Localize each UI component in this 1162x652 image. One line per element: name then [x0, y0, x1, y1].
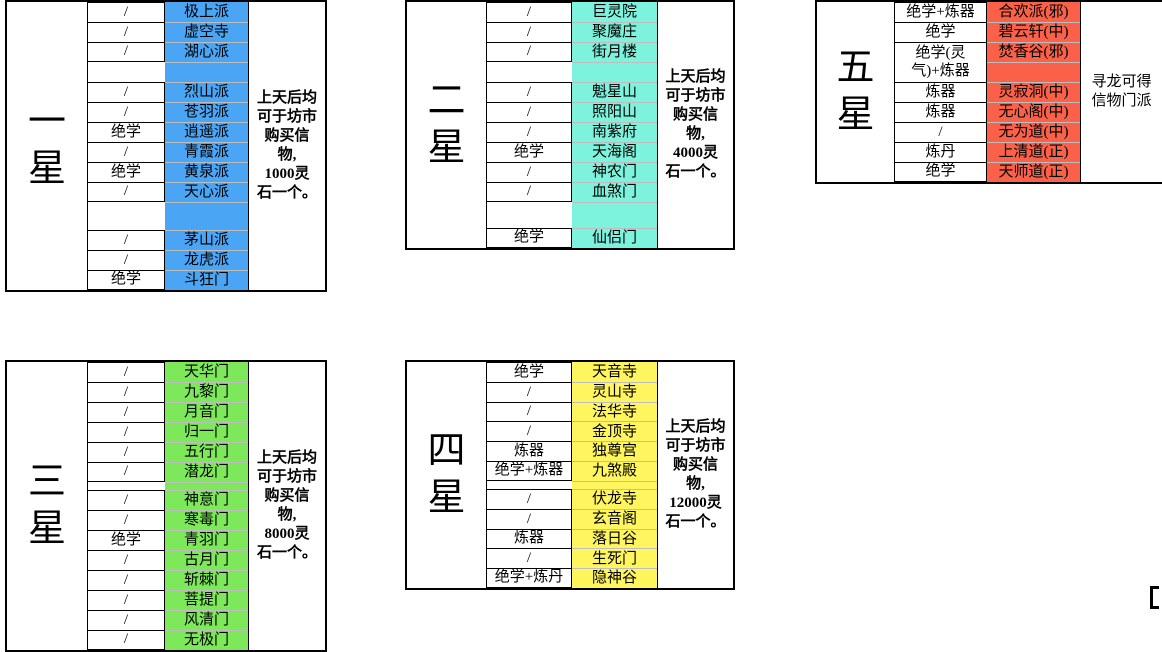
- requirement-cell[interactable]: /: [487, 42, 572, 62]
- sect-cell[interactable]: 南紫府: [572, 122, 657, 142]
- requirement-cell[interactable]: /: [487, 182, 572, 202]
- star-rating-char: 五: [836, 49, 874, 89]
- star-rating-char: 二: [427, 82, 465, 122]
- star-rating-char: 星: [28, 150, 66, 190]
- note-line: 购买信: [264, 127, 309, 146]
- sect-cell[interactable]: 神农门: [572, 162, 657, 182]
- sect-cell[interactable]: 伏龙寺: [572, 489, 657, 509]
- sect-cell[interactable]: 灵寂洞(中): [987, 82, 1080, 102]
- requirement-column: ////////绝学/////: [88, 362, 165, 650]
- note-line: 可于坊市: [665, 437, 725, 456]
- sect-cell[interactable]: 玄音阁: [572, 509, 657, 529]
- note-line: 物,: [278, 146, 297, 165]
- note-line: 4000灵: [673, 144, 718, 163]
- group-gap: [88, 202, 165, 230]
- sect-cell[interactable]: 风清门: [165, 610, 248, 630]
- requirement-cell[interactable]: 绝学: [895, 22, 987, 42]
- star-table-3: 三星////////绝学/////天华门九黎门月音门归一门五行门潜龙门神意门寒毒…: [5, 360, 327, 652]
- requirement-cell[interactable]: /: [487, 489, 572, 509]
- requirement-cell[interactable]: 绝学: [487, 362, 572, 382]
- note-cell[interactable]: 上天后均可于坊市购买信物,1000灵石一个。: [248, 2, 325, 290]
- sect-cell[interactable]: 斩棘门: [165, 570, 248, 590]
- star-rating-label[interactable]: 四星: [407, 362, 487, 588]
- sect-cell[interactable]: 隐神谷: [572, 568, 657, 588]
- sect-cell[interactable]: 黄泉派: [165, 162, 248, 182]
- star-rating-char: 星: [427, 129, 465, 169]
- note-line: 石一个。: [665, 513, 725, 532]
- sect-cell[interactable]: 青羽门: [165, 530, 248, 550]
- sect-cell[interactable]: 湖心派: [165, 42, 248, 62]
- requirement-cell[interactable]: 绝学: [895, 162, 987, 182]
- requirement-cell[interactable]: /: [487, 2, 572, 22]
- note-line: 上天后均: [665, 418, 725, 437]
- sect-cell[interactable]: 生死门: [572, 548, 657, 568]
- requirement-cell[interactable]: /: [487, 548, 572, 568]
- sect-cell-extension: [987, 62, 1080, 82]
- spreadsheet-canvas: { "colors": { "grid": "#000000", "separa…: [0, 0, 1162, 646]
- star-rating-label[interactable]: 二星: [407, 2, 487, 248]
- sect-column: 天音寺灵山寺法华寺金顶寺独尊宫九煞殿伏龙寺玄音阁落日谷生死门隐神谷: [572, 362, 657, 588]
- note-line: 石一个。: [257, 184, 317, 203]
- sect-cell[interactable]: 虚空寺: [165, 22, 248, 42]
- sect-cell[interactable]: 碧云轩(中): [987, 22, 1080, 42]
- star-rating-label[interactable]: 五星: [817, 2, 895, 182]
- requirement-cell[interactable]: /: [88, 82, 165, 102]
- requirement-cell[interactable]: /: [487, 421, 572, 441]
- requirement-cell[interactable]: /: [88, 570, 165, 590]
- group-gap: [572, 62, 657, 82]
- requirement-cell[interactable]: /: [88, 610, 165, 630]
- group-gap: [487, 62, 572, 82]
- sect-cell[interactable]: 血煞门: [572, 182, 657, 202]
- sect-cell[interactable]: 古月门: [165, 550, 248, 570]
- requirement-cell[interactable]: 炼器: [487, 441, 572, 461]
- requirement-cell[interactable]: /: [487, 509, 572, 529]
- note-line: 物,: [686, 125, 705, 144]
- star-rating-label[interactable]: 一星: [7, 2, 88, 290]
- star-rating-char: 三: [28, 463, 66, 503]
- requirement-cell[interactable]: 绝学: [88, 530, 165, 550]
- sect-cell[interactable]: 落日谷: [572, 529, 657, 549]
- note-line: 购买信: [673, 106, 718, 125]
- requirement-cell[interactable]: /: [487, 82, 572, 102]
- sect-cell[interactable]: 巨灵院: [572, 2, 657, 22]
- requirement-cell[interactable]: /: [487, 102, 572, 122]
- group-gap: [572, 481, 657, 489]
- requirement-cell[interactable]: 绝学: [88, 122, 165, 142]
- requirement-cell[interactable]: 炼器: [895, 82, 987, 102]
- requirement-cell[interactable]: 绝学: [487, 228, 572, 248]
- requirement-cell[interactable]: /: [88, 102, 165, 122]
- note-line: 1000灵: [264, 165, 309, 184]
- requirement-cell[interactable]: /: [88, 462, 165, 482]
- sect-cell[interactable]: 九黎门: [165, 382, 248, 402]
- requirement-cell[interactable]: /: [88, 182, 165, 202]
- note-cell[interactable]: 上天后均可于坊市购买信物,12000灵石一个。: [657, 362, 733, 588]
- sect-cell[interactable]: 逍遥派: [165, 122, 248, 142]
- note-line: 购买信: [673, 456, 718, 475]
- sect-cell[interactable]: 魁星山: [572, 82, 657, 102]
- star-rating-char: 四: [427, 432, 465, 472]
- sect-column: 巨灵院聚魔庄街月楼魁星山照阳山南紫府天海阁神农门血煞门仙侣门: [572, 2, 657, 248]
- partial-cell-fragment: [1150, 586, 1159, 609]
- requirement-cell[interactable]: 绝学(灵气)+炼器: [895, 42, 987, 82]
- sect-cell[interactable]: 街月楼: [572, 42, 657, 62]
- sect-cell[interactable]: 无极门: [165, 630, 248, 650]
- sect-cell[interactable]: 上清道(正): [987, 142, 1080, 162]
- sect-cell[interactable]: 潜龙门: [165, 462, 248, 482]
- sect-column: 天华门九黎门月音门归一门五行门潜龙门神意门寒毒门青羽门古月门斩棘门菩提门风清门无…: [165, 362, 248, 650]
- requirement-cell[interactable]: /: [88, 550, 165, 570]
- requirement-cell[interactable]: /: [88, 490, 165, 510]
- requirement-cell[interactable]: /: [88, 402, 165, 422]
- note-line: 石一个。: [257, 544, 317, 563]
- requirement-cell[interactable]: /: [88, 2, 165, 22]
- requirement-column: 绝学+炼器绝学绝学(灵气)+炼器炼器炼器/炼丹绝学: [895, 2, 987, 182]
- star-rating-char: 星: [427, 479, 465, 519]
- note-line: 可于坊市: [257, 108, 317, 127]
- sect-cell[interactable]: 仙侣门: [572, 228, 657, 248]
- sect-cell[interactable]: 斗狂门: [165, 270, 248, 290]
- sect-column: 极上派虚空寺湖心派烈山派苍羽派逍遥派青霞派黄泉派天心派茅山派龙虎派斗狂门: [165, 2, 248, 290]
- requirement-cell[interactable]: /: [487, 122, 572, 142]
- sect-cell[interactable]: 合欢派(邪): [987, 2, 1080, 22]
- star-table-4: 四星绝学///炼器绝学+炼器//炼器/绝学+炼丹天音寺灵山寺法华寺金顶寺独尊宫九…: [405, 360, 735, 590]
- sect-cell[interactable]: 法华寺: [572, 402, 657, 422]
- sect-cell[interactable]: 五行门: [165, 442, 248, 462]
- requirement-cell[interactable]: /: [88, 22, 165, 42]
- sect-cell[interactable]: 神意门: [165, 490, 248, 510]
- requirement-cell[interactable]: /: [88, 422, 165, 442]
- sect-cell[interactable]: 金顶寺: [572, 421, 657, 441]
- requirement-cell[interactable]: /: [487, 402, 572, 422]
- requirement-cell[interactable]: /: [88, 230, 165, 250]
- requirement-cell[interactable]: 炼器: [895, 102, 987, 122]
- sect-cell[interactable]: 天海阁: [572, 142, 657, 162]
- group-gap: [487, 202, 572, 228]
- note-line: 12000灵: [669, 494, 722, 513]
- sect-cell[interactable]: 天心派: [165, 182, 248, 202]
- sect-cell[interactable]: 聚魔庄: [572, 22, 657, 42]
- requirement-cell[interactable]: 绝学: [487, 142, 572, 162]
- requirement-cell[interactable]: /: [88, 442, 165, 462]
- sect-cell[interactable]: 焚香谷(邪): [987, 42, 1080, 62]
- note-line: 可于坊市: [257, 468, 317, 487]
- requirement-cell[interactable]: /: [88, 142, 165, 162]
- sect-column: 合欢派(邪)碧云轩(中)焚香谷(邪)灵寂洞(中)无心阁(中)无为道(中)上清道(…: [987, 2, 1080, 182]
- requirement-cell[interactable]: /: [88, 362, 165, 382]
- requirement-cell[interactable]: 炼丹: [895, 142, 987, 162]
- sect-cell[interactable]: 九煞殿: [572, 461, 657, 481]
- note-line: 上天后均: [257, 449, 317, 468]
- sect-cell[interactable]: 烈山派: [165, 82, 248, 102]
- group-gap: [487, 481, 572, 489]
- requirement-cell[interactable]: /: [895, 122, 987, 142]
- requirement-cell[interactable]: /: [487, 162, 572, 182]
- note-cell[interactable]: 上天后均可于坊市购买信物,4000灵石一个。: [657, 2, 733, 248]
- requirement-cell[interactable]: 绝学+炼器: [487, 461, 572, 481]
- star-rating-char: 星: [836, 96, 874, 136]
- note-line: 购买信: [264, 487, 309, 506]
- sect-cell[interactable]: 青霞派: [165, 142, 248, 162]
- note-line: 上天后均: [257, 89, 317, 108]
- star-table-5: 五星绝学+炼器绝学绝学(灵气)+炼器炼器炼器/炼丹绝学合欢派(邪)碧云轩(中)焚…: [815, 0, 1162, 184]
- requirement-cell[interactable]: 绝学+炼丹: [487, 568, 572, 588]
- note-line: 物,: [278, 506, 297, 525]
- requirement-cell[interactable]: /: [88, 42, 165, 62]
- requirement-cell[interactable]: /: [88, 382, 165, 402]
- requirement-column: /////绝学/绝学///绝学: [88, 2, 165, 290]
- sect-cell[interactable]: 月音门: [165, 402, 248, 422]
- sect-cell[interactable]: 苍羽派: [165, 102, 248, 122]
- sect-cell[interactable]: 无为道(中): [987, 122, 1080, 142]
- group-gap: [165, 62, 248, 82]
- sect-cell[interactable]: 菩提门: [165, 590, 248, 610]
- requirement-cell[interactable]: 炼器: [487, 529, 572, 549]
- note-line: 石一个。: [665, 163, 725, 182]
- sect-cell[interactable]: 灵山寺: [572, 382, 657, 402]
- sect-cell[interactable]: 寒毒门: [165, 510, 248, 530]
- sect-cell[interactable]: 天华门: [165, 362, 248, 382]
- requirement-cell[interactable]: /: [88, 630, 165, 650]
- requirement-cell[interactable]: /: [88, 590, 165, 610]
- sect-cell[interactable]: 极上派: [165, 2, 248, 22]
- sect-cell[interactable]: 归一门: [165, 422, 248, 442]
- sect-cell[interactable]: 照阳山: [572, 102, 657, 122]
- sect-cell[interactable]: 天师道(正): [987, 162, 1080, 182]
- group-gap: [165, 202, 248, 230]
- requirement-cell[interactable]: /: [487, 22, 572, 42]
- requirement-column: //////绝学//绝学: [487, 2, 572, 248]
- star-rating-char: 一: [28, 103, 66, 143]
- note-line: 可于坊市: [665, 87, 725, 106]
- requirement-cell[interactable]: 绝学: [88, 270, 165, 290]
- group-gap: [572, 202, 657, 228]
- note-cell[interactable]: 寻龙可得信物门派: [1080, 2, 1162, 182]
- requirement-cell[interactable]: 绝学: [88, 162, 165, 182]
- note-cell[interactable]: 上天后均可于坊市购买信物,8000灵石一个。: [248, 362, 325, 650]
- note-line: 寻龙可得: [1091, 73, 1151, 92]
- requirement-cell[interactable]: /: [88, 250, 165, 270]
- sect-cell[interactable]: 茅山派: [165, 230, 248, 250]
- requirement-cell[interactable]: /: [88, 510, 165, 530]
- note-line: 物,: [686, 475, 705, 494]
- group-gap: [88, 482, 165, 490]
- note-line: 上天后均: [665, 68, 725, 87]
- note-line: 8000灵: [264, 525, 309, 544]
- sect-cell[interactable]: 龙虎派: [165, 250, 248, 270]
- sect-cell[interactable]: 天音寺: [572, 362, 657, 382]
- group-gap: [88, 62, 165, 82]
- group-gap: [165, 482, 248, 490]
- sect-cell[interactable]: 无心阁(中): [987, 102, 1080, 122]
- star-table-1: 一星/////绝学/绝学///绝学极上派虚空寺湖心派烈山派苍羽派逍遥派青霞派黄泉…: [5, 0, 327, 292]
- requirement-cell[interactable]: /: [487, 382, 572, 402]
- sect-cell[interactable]: 独尊宫: [572, 441, 657, 461]
- note-line: 信物门派: [1091, 92, 1151, 111]
- star-rating-label[interactable]: 三星: [7, 362, 88, 650]
- requirement-cell[interactable]: 绝学+炼器: [895, 2, 987, 22]
- requirement-column: 绝学///炼器绝学+炼器//炼器/绝学+炼丹: [487, 362, 572, 588]
- star-rating-char: 星: [28, 510, 66, 550]
- star-table-2: 二星//////绝学//绝学巨灵院聚魔庄街月楼魁星山照阳山南紫府天海阁神农门血煞…: [405, 0, 735, 250]
